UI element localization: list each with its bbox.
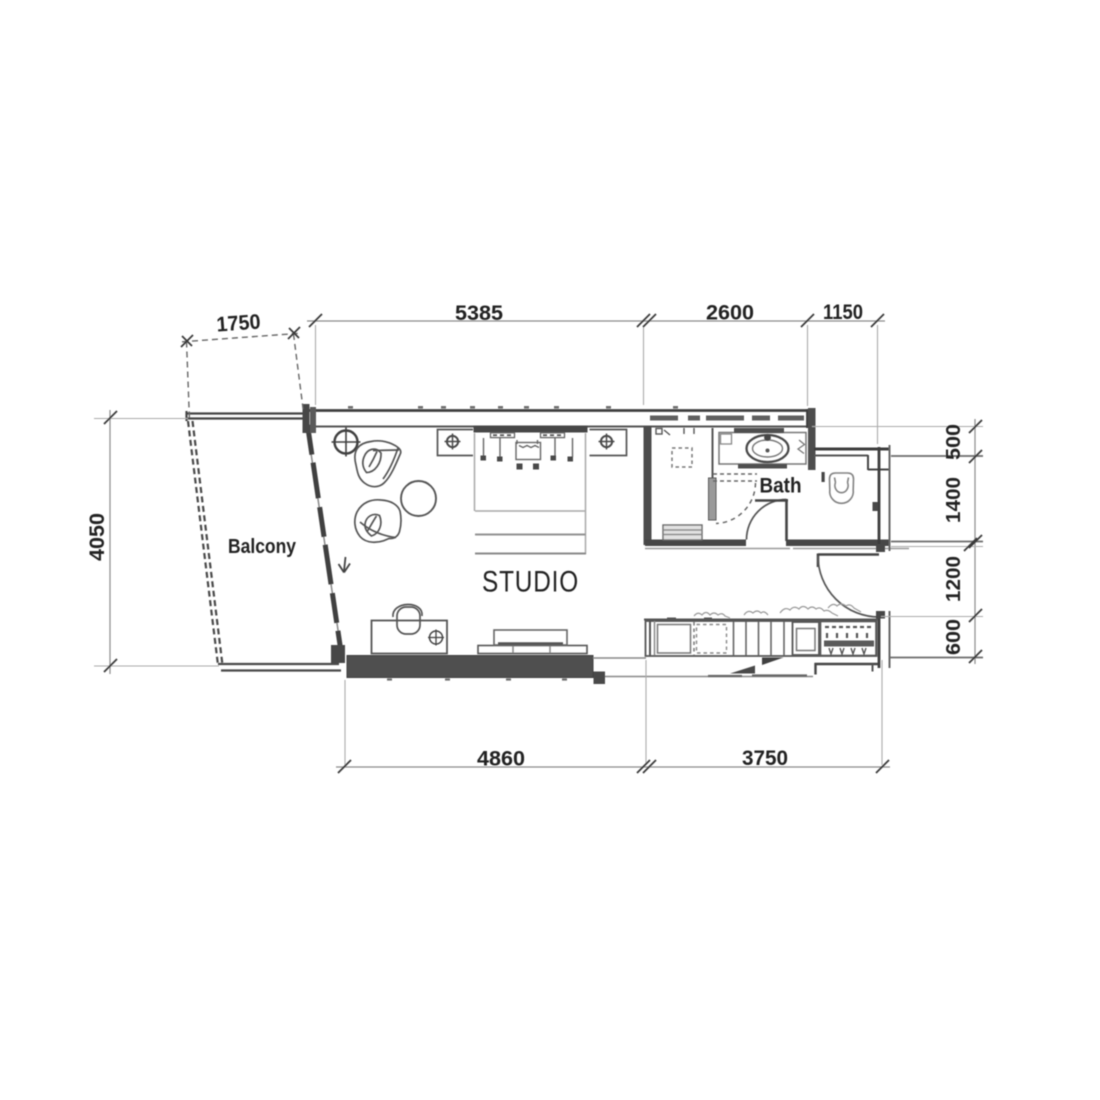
svg-text:1150: 1150 — [823, 301, 863, 324]
svg-text:500: 500 — [943, 424, 965, 460]
svg-text:3750: 3750 — [742, 747, 788, 770]
svg-text:STUDIO: STUDIO — [482, 566, 579, 599]
svg-text:2600: 2600 — [706, 302, 754, 325]
svg-text:4860: 4860 — [477, 748, 525, 771]
svg-text:1750: 1750 — [216, 310, 262, 336]
svg-text:Balcony: Balcony — [228, 536, 297, 558]
svg-text:5385: 5385 — [455, 302, 503, 325]
svg-text:Bath: Bath — [760, 475, 802, 498]
svg-text:600: 600 — [943, 619, 965, 655]
svg-text:1200: 1200 — [943, 556, 965, 602]
svg-text:1400: 1400 — [943, 477, 965, 523]
svg-text:4050: 4050 — [86, 513, 109, 561]
